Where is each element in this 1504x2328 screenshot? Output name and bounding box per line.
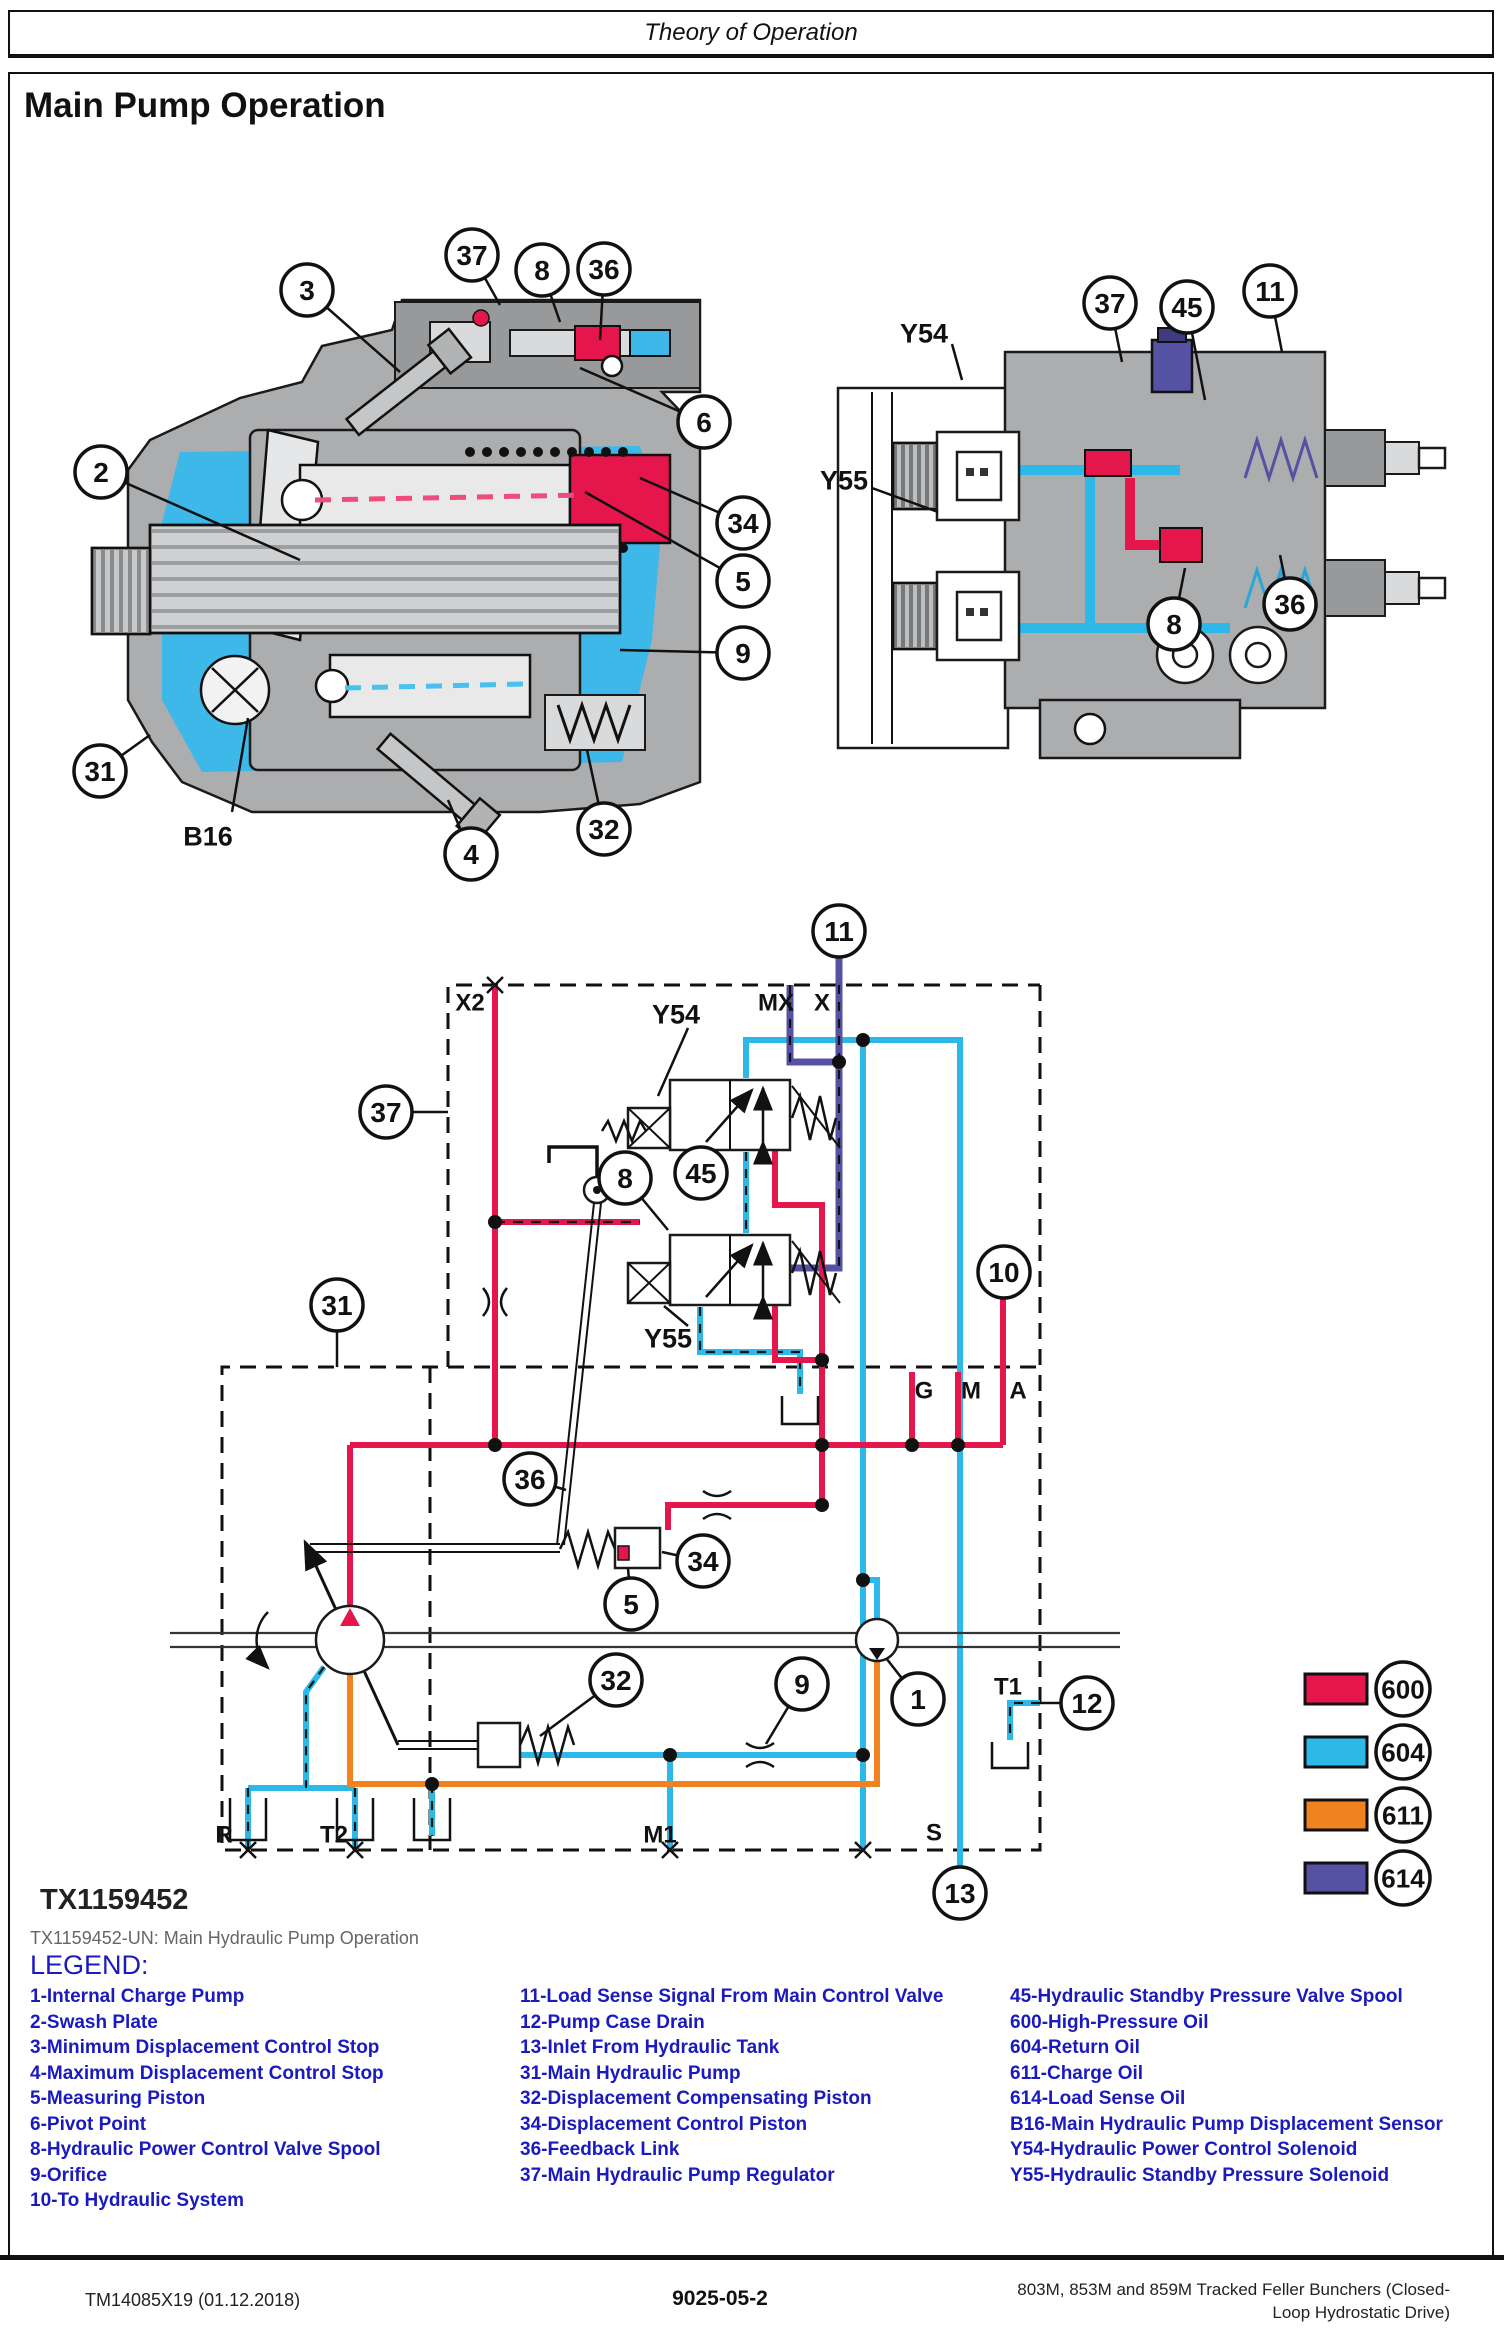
legend-item: 12-Pump Case Drain (520, 2010, 970, 2036)
page-title: Main Pump Operation (24, 86, 386, 126)
figure-caption: TX1159452-UN: Main Hydraulic Pump Operat… (30, 1928, 419, 1949)
legend-item: 8-Hydraulic Power Control Valve Spool (30, 2137, 470, 2163)
legend-item: 36-Feedback Link (520, 2137, 970, 2163)
footer-doc-number: TM14085X19 (01.12.2018) (85, 2290, 300, 2311)
legend-item: 31-Main Hydraulic Pump (520, 2061, 970, 2087)
legend-column-1: 1-Internal Charge Pump2-Swash Plate3-Min… (30, 1984, 470, 2214)
legend-item: 6-Pivot Point (30, 2112, 470, 2138)
manual-page: Theory of Operation Main Pump Operation (0, 0, 1504, 2328)
legend-item: 11-Load Sense Signal From Main Control V… (520, 1984, 970, 2010)
figure-id: TX1159452 (40, 1884, 188, 1917)
legend-item: 32-Displacement Compensating Piston (520, 2086, 970, 2112)
legend-item: 1-Internal Charge Pump (30, 1984, 470, 2010)
legend-item: 604-Return Oil (1010, 2035, 1465, 2061)
footer-model-line2: Loop Hydrostatic Drive) (860, 2301, 1450, 2324)
legend-item: 13-Inlet From Hydraulic Tank (520, 2035, 970, 2061)
legend-item: 4-Maximum Displacement Control Stop (30, 2061, 470, 2087)
legend-item: Y55-Hydraulic Standby Pressure Solenoid (1010, 2163, 1465, 2189)
legend-item: 611-Charge Oil (1010, 2061, 1465, 2087)
page-header: Theory of Operation (8, 10, 1494, 58)
legend-item: 600-High-Pressure Oil (1010, 2010, 1465, 2036)
legend-item: 9-Orifice (30, 2163, 470, 2189)
footer-model-line1: 803M, 853M and 859M Tracked Feller Bunch… (860, 2278, 1450, 2301)
legend-item: 45-Hydraulic Standby Pressure Valve Spoo… (1010, 1984, 1465, 2010)
legend-item: 3-Minimum Displacement Control Stop (30, 2035, 470, 2061)
legend-item: 10-To Hydraulic System (30, 2188, 470, 2214)
header-title: Theory of Operation (644, 19, 857, 47)
legend-heading: LEGEND: (30, 1950, 149, 1981)
legend-item: 37-Main Hydraulic Pump Regulator (520, 2163, 970, 2189)
footer-model-info: 803M, 853M and 859M Tracked Feller Bunch… (860, 2278, 1450, 2324)
legend-item: Y54-Hydraulic Power Control Solenoid (1010, 2137, 1465, 2163)
legend-column-2: 11-Load Sense Signal From Main Control V… (520, 1984, 970, 2188)
legend-item: 614-Load Sense Oil (1010, 2086, 1465, 2112)
footer-rule (0, 2255, 1504, 2260)
legend-item: 2-Swash Plate (30, 2010, 470, 2036)
legend-column-3: 45-Hydraulic Standby Pressure Valve Spoo… (1010, 1984, 1465, 2188)
legend-item: 5-Measuring Piston (30, 2086, 470, 2112)
legend-item: 34-Displacement Control Piston (520, 2112, 970, 2138)
footer-page-number: 9025-05-2 (620, 2287, 820, 2311)
legend-item: B16-Main Hydraulic Pump Displacement Sen… (1010, 2112, 1465, 2138)
